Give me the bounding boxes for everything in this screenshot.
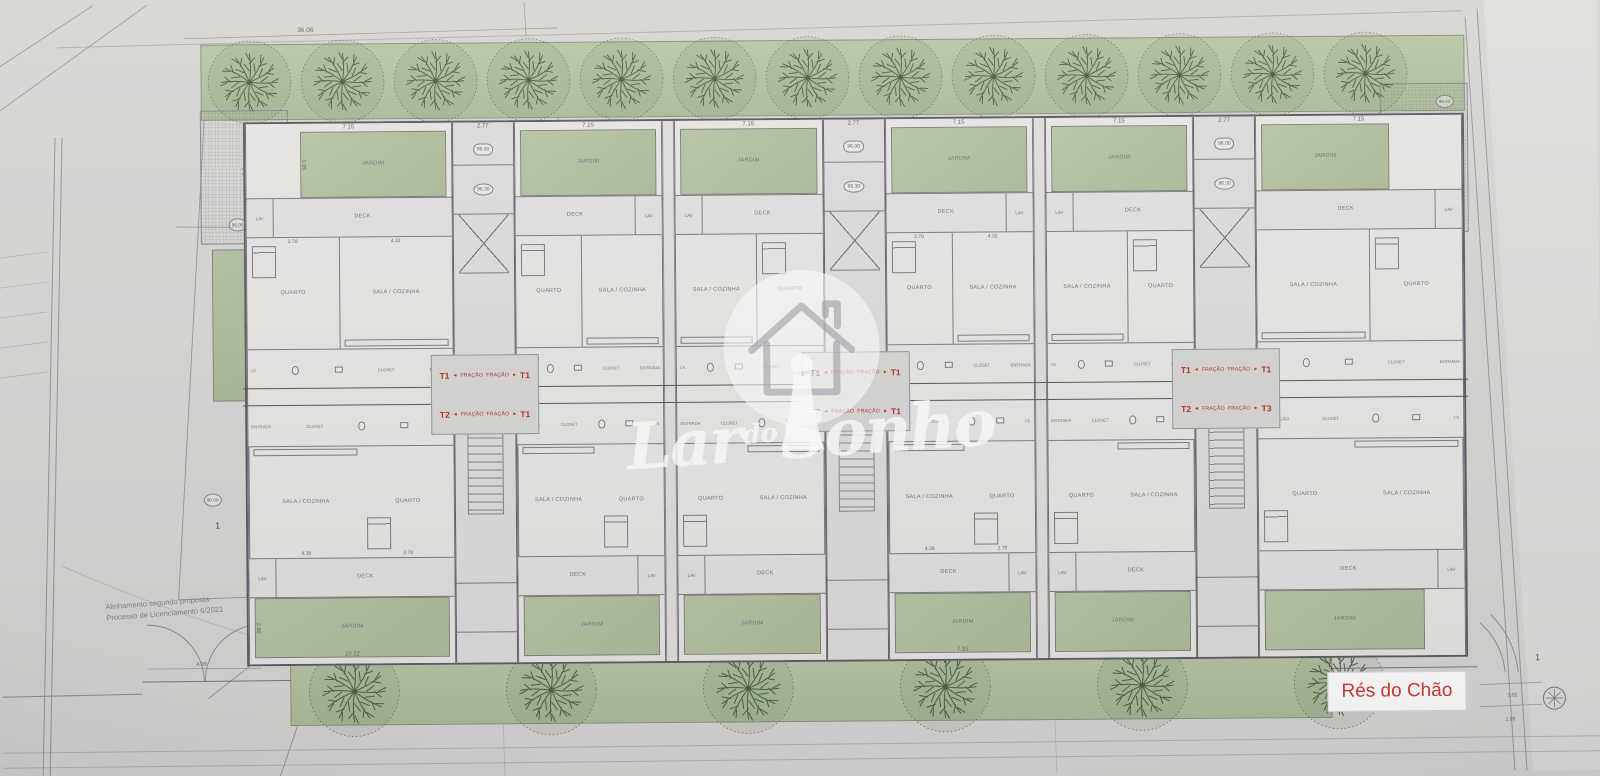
room-label-closet: CLOSET xyxy=(973,362,990,367)
tree-icon xyxy=(1319,27,1412,120)
plan-sheet: 36.06 7.63 4.99 1. xyxy=(0,0,1600,776)
unit-type-label: T2 xyxy=(810,406,820,416)
room-quarto: QUARTO xyxy=(1048,441,1114,553)
sink-icon xyxy=(786,419,794,425)
toilet-icon xyxy=(292,365,299,374)
room-lav: LAV xyxy=(1434,190,1461,228)
room-jardim: 3.95 JARDIM xyxy=(1051,125,1188,192)
room-label-jardim: JARDIM xyxy=(951,619,973,626)
tree-icon xyxy=(482,34,575,127)
fracao-text: FRAÇÃO xyxy=(1202,405,1225,411)
room-label-quarto: QUARTO xyxy=(536,288,561,295)
room-quarto: QUARTO xyxy=(1128,231,1194,343)
room-sala-cozinha: SALA / COZINHA xyxy=(1114,440,1196,552)
room-label-is: I.S. xyxy=(1051,361,1057,366)
room-label-jardim: JARDIM xyxy=(948,156,970,163)
room-jardim: 2.86 JARDIM xyxy=(523,595,660,656)
room-label-quarto: QUARTO xyxy=(281,290,306,297)
bed-furniture xyxy=(604,515,628,547)
room-sala-cozinha: SALA / COZINHA xyxy=(517,445,599,557)
rooms-upper: QUARTO SALA / COZINHA I.S. CLOSET ENTRAD… xyxy=(1257,229,1463,383)
dimension-label: 2.77 xyxy=(453,123,513,129)
dimension-label: 10.22 xyxy=(256,651,449,659)
hallway: ENTRADA CLOSET I.S. xyxy=(248,405,453,448)
room-label-sala: SALA / COZINHA xyxy=(372,289,419,297)
room-jardim: 3.95 JARDIM xyxy=(680,128,817,195)
sink-icon xyxy=(734,363,742,369)
lot-number: 1 xyxy=(215,521,220,531)
room-lav: LAV xyxy=(638,556,665,594)
arrow-right-icon: ► xyxy=(1253,366,1258,372)
room-row: 2.70 QUARTO 4.32 SALA / COZINHA xyxy=(247,237,453,350)
apartment-unit: 7.15 3.95 JARDIM LAV DECK QUARTO SALA / … xyxy=(1255,115,1466,657)
room-jardim: 2.86 JARDIM xyxy=(1054,591,1191,652)
kitchen-counter xyxy=(1051,333,1123,341)
bed-furniture xyxy=(683,515,707,547)
room-deck: LAV DECK xyxy=(676,194,823,235)
staircase xyxy=(467,428,504,514)
room-deck: LAV DECK xyxy=(1046,191,1193,232)
room-row: SALA / COZINHA QUARTO xyxy=(517,444,664,556)
sink-icon xyxy=(1157,416,1165,422)
tree-icon xyxy=(203,36,296,129)
bed-furniture xyxy=(1375,237,1399,269)
toilet-icon xyxy=(969,416,976,425)
bed-furniture xyxy=(367,517,391,549)
room-deck: LAV DECK xyxy=(515,195,662,236)
room-sala-cozinha: 4.32 SALA / COZINHA xyxy=(339,237,453,349)
unit-type-label: T1 xyxy=(1261,364,1271,374)
tree-icon xyxy=(1040,29,1133,122)
room-deck: LAV DECK xyxy=(1049,551,1196,592)
fracao-text: FRAÇÃO xyxy=(857,369,880,375)
bed-furniture xyxy=(1264,510,1288,542)
toilet-icon xyxy=(707,362,714,371)
room-label-jardim: JARDIM xyxy=(362,161,384,168)
room-sala-cozinha: SALA / COZINHA xyxy=(1257,230,1371,342)
room-sala-cozinha: SALA / COZINHA xyxy=(1350,438,1464,550)
fracao-text: FRAÇÃO xyxy=(831,369,854,375)
core-lobby: 96.30 xyxy=(1194,159,1254,208)
hallway: I.S. CLOSET ENTRADA xyxy=(1258,340,1463,383)
room-label-closet: CLOSET xyxy=(931,418,948,423)
unit-type-label: T2 xyxy=(1181,403,1191,413)
room-sala-cozinha: SALA / COZINHA xyxy=(676,234,758,346)
room-label-quarto: QUARTO xyxy=(777,286,802,293)
elevator-shaft xyxy=(829,211,879,270)
room-label-jardim: JARDIM xyxy=(741,621,763,628)
room-label-closet: CLOSET xyxy=(763,364,780,369)
sink-icon xyxy=(945,362,953,368)
arrow-right-icon: ► xyxy=(512,372,517,378)
bed-furniture xyxy=(252,246,276,278)
elevator-shaft xyxy=(458,214,508,273)
room-label-entrada: ENTRADA xyxy=(1051,417,1071,422)
kitchen-counter xyxy=(1262,332,1366,340)
kitchen-counter xyxy=(957,334,1029,342)
staircase xyxy=(838,425,875,511)
toilet-icon xyxy=(547,363,554,372)
room-label-sala: SALA / COZINHA xyxy=(1383,490,1430,498)
room-row: QUARTO SALA / COZINHA xyxy=(676,234,823,346)
room-label-quarto: QUARTO xyxy=(698,496,723,503)
core-vestibule: 96.00 xyxy=(824,131,884,162)
tree-icon xyxy=(389,34,482,127)
unit-type-label: T1 xyxy=(520,409,530,419)
elevator-shaft xyxy=(1200,208,1250,267)
room-quarto: QUARTO xyxy=(598,444,664,556)
corridor-spine-gap xyxy=(1258,381,1463,399)
fracao-labels: T1 ◄ FRAÇÃO FRAÇÃO ► T1 T2 ◄ FRAÇÃO FRAÇ… xyxy=(1172,348,1281,429)
elevation-cote: 96.00 xyxy=(1214,138,1235,150)
room-label-deck: DECK xyxy=(1076,567,1195,575)
corridor-spine-gap xyxy=(248,389,453,407)
fracao-text: FRAÇÃO xyxy=(460,372,483,378)
elevation-cote: 96.00 xyxy=(843,140,864,152)
toilet-icon xyxy=(1077,359,1084,368)
dimension-label: 4.38 xyxy=(250,550,362,557)
room-label-closet: CLOSET xyxy=(1388,359,1405,364)
fracao-row-lower: T2 ◄ FRAÇÃO FRAÇÃO ► T3 xyxy=(1173,403,1279,414)
bed-furniture xyxy=(762,242,786,274)
room-label-entrada: ENTRADA xyxy=(251,424,271,429)
room-label-sala: SALA / COZINHA xyxy=(760,495,807,503)
room-quarto: 2.70 QUARTO xyxy=(886,233,952,345)
stair-core: 2.77 96.00 96.30 T1 ◄ FRAÇÃO FRAÇÃO ► T1… xyxy=(1193,116,1259,656)
toilet-icon xyxy=(917,361,924,370)
dimension-label: 2.77 xyxy=(823,120,883,126)
sink-icon xyxy=(1413,414,1421,420)
room-jardim: 2.86 JARDIM xyxy=(684,594,821,655)
room-jardim: 3.95 JARDIM xyxy=(520,129,657,196)
room-label-sala: SALA / COZINHA xyxy=(1130,492,1177,500)
room-row: QUARTO SALA / COZINHA xyxy=(516,235,663,347)
room-jardim: 3.95 JARDIM xyxy=(1261,123,1389,190)
apartment-unit: 7.15 3.95 JARDIM LAV DECK 2.70 QUARTO 4.… xyxy=(245,123,456,665)
elevation-cote: 96.00 xyxy=(473,143,494,155)
room-label-closet: CLOSET xyxy=(1322,415,1339,420)
room-sala-cozinha: SALA / COZINHA xyxy=(743,443,825,555)
room-label-deck: DECK xyxy=(706,570,825,578)
room-sala-cozinha: SALA / COZINHA xyxy=(1047,231,1129,343)
room-row: SALA / COZINHA QUARTO xyxy=(1259,438,1465,551)
room-jardim: 2.86 JARDIM 10.22 xyxy=(255,597,450,659)
sink-icon xyxy=(996,417,1004,423)
room-label-sala: SALA / COZINHA xyxy=(1063,283,1110,291)
room-lav: LAV xyxy=(1049,553,1076,591)
unit-type-label: T1 xyxy=(1181,364,1191,374)
fracao-row-upper: T1 ◄ FRAÇÃO FRAÇÃO ► T1 xyxy=(432,370,538,381)
fracao-text: FRAÇÃO xyxy=(1202,366,1225,372)
bed-furniture xyxy=(521,244,545,276)
floor-name: Rés do Chão xyxy=(1341,680,1452,703)
room-label-deck: DECK xyxy=(889,569,1008,577)
room-deck: LAV DECK xyxy=(889,552,1036,593)
room-quarto: 2.70 QUARTO xyxy=(969,441,1035,553)
room-row: SALA / COZINHA QUARTO xyxy=(678,443,825,555)
hallway: I.S. CLOSET ENTRADA xyxy=(248,348,453,391)
dimension-label: 7.15 xyxy=(885,119,1031,126)
fracao-row-lower: T2 ◄ FRAÇÃO FRAÇÃO ► T1 xyxy=(432,409,538,420)
fracao-text: FRAÇÃO xyxy=(831,408,854,414)
tree-icon xyxy=(668,32,761,125)
sink-icon xyxy=(1345,359,1353,365)
dimension-label: 4.32 xyxy=(340,238,452,245)
bed-furniture xyxy=(1133,239,1157,271)
dimension-label: 2.86 xyxy=(255,623,261,634)
room-row: SALA / COZINHA QUARTO xyxy=(1048,440,1195,552)
lot-number: 1 xyxy=(1535,652,1540,662)
rooms-lower: CIRCULAÇÃO CLOSET I.S. SALA / COZINHA QU… xyxy=(1258,397,1464,551)
room-label-closet: CLOSET xyxy=(721,420,738,425)
arrow-left-icon: ◄ xyxy=(453,411,458,417)
staircase xyxy=(1208,423,1245,509)
elevation-cote: 96.40 xyxy=(1436,95,1454,108)
arrow-right-icon: ► xyxy=(1254,405,1259,411)
fracao-labels: T1 ◄ FRAÇÃO FRAÇÃO ► T1 T2 ◄ FRAÇÃO FRAÇ… xyxy=(801,351,910,432)
toilet-icon xyxy=(598,419,605,428)
room-label-sala: SALA / COZINHA xyxy=(693,286,740,294)
sink-icon xyxy=(401,422,409,428)
room-lav: LAV xyxy=(1005,193,1032,231)
room-deck: LAV DECK xyxy=(886,192,1033,233)
room-label-closet: CLOSET xyxy=(1134,361,1151,366)
room-quarto: QUARTO xyxy=(678,443,744,555)
arrow-right-icon: ► xyxy=(512,411,517,417)
rooms-lower: ENTRADA CLOSET I.S. 4.38 SALA / COZINHA … xyxy=(248,405,454,559)
dimension-label: 7.15 xyxy=(675,121,821,128)
room-row: QUARTO SALA / COZINHA xyxy=(1047,231,1194,343)
fracao-row-lower: T2 ◄ FRAÇÃO FRAÇÃO ► T1 xyxy=(803,406,909,417)
room-label-sala: SALA / COZINHA xyxy=(535,497,582,505)
room-label-deck: DECK xyxy=(518,572,637,580)
room-label-is: I.S. xyxy=(680,364,686,369)
elevation-cote: 96.30 xyxy=(1214,178,1235,190)
tree-icon xyxy=(947,30,1040,123)
room-sala-cozinha: 4.32 SALA / COZINHA xyxy=(952,232,1034,344)
room-quarto: QUARTO xyxy=(516,236,582,348)
dimension-label: 7.15 xyxy=(515,122,661,129)
room-row: QUARTO SALA / COZINHA xyxy=(1257,229,1463,342)
room-label-is: I.S. xyxy=(1454,414,1460,419)
room-label-sala: SALA / COZINHA xyxy=(1290,282,1337,290)
paper-margin xyxy=(1483,0,1600,771)
room-lav: LAV xyxy=(635,196,662,234)
arrow-left-icon: ◄ xyxy=(1194,405,1199,411)
toilet-icon xyxy=(1129,415,1136,424)
dimension-label: 4.99 xyxy=(196,662,207,668)
room-label-deck: DECK xyxy=(703,210,822,218)
room-label-deck: DECK xyxy=(274,213,452,222)
room-jardim: 2.86 JARDIM xyxy=(1265,589,1425,650)
dimension-label: 4.38 xyxy=(890,546,970,553)
room-row: 4.38 SALA / COZINHA 2.70 QUARTO xyxy=(888,441,1035,553)
dimension-label: 7.15 xyxy=(896,646,1030,653)
dimension-label: 7.15 xyxy=(1046,118,1192,125)
room-quarto: QUARTO xyxy=(1370,229,1463,341)
fracao-text: FRAÇÃO xyxy=(1228,366,1251,372)
fracao-labels: T1 ◄ FRAÇÃO FRAÇÃO ► T1 T2 ◄ FRAÇÃO FRAÇ… xyxy=(431,354,540,435)
unit-type-label: T3 xyxy=(1262,403,1272,413)
kitchen-counter xyxy=(1354,440,1458,448)
floorplan-photo: 36.06 7.63 4.99 1. xyxy=(0,0,1600,776)
elevation-cote: 96.30 xyxy=(844,180,865,192)
kitchen-counter xyxy=(893,444,965,452)
room-deck: LAV DECK xyxy=(249,557,454,599)
room-deck: LAV DECK xyxy=(678,554,825,595)
room-label-deck: DECK xyxy=(886,209,1005,217)
room-sala-cozinha: SALA / COZINHA xyxy=(581,235,663,347)
room-lav: LAV xyxy=(247,199,274,237)
room-label-is: I.S. xyxy=(1025,418,1031,423)
fracao-text: FRAÇÃO xyxy=(1228,405,1251,411)
room-label-jardim: JARDIM xyxy=(1334,616,1356,623)
core-lobby: 96.30 xyxy=(453,165,513,214)
room-label-quarto: QUARTO xyxy=(1148,283,1173,290)
rooms-upper: 2.70 QUARTO 4.32 SALA / COZINHA I.S. CLO… xyxy=(247,237,453,391)
room-label-jardim: JARDIM xyxy=(581,622,603,629)
dimension-label: 2.70 xyxy=(247,239,339,246)
room-jardim: 3.95 JARDIM xyxy=(300,131,446,198)
room-label-deck: DECK xyxy=(515,212,634,220)
arrow-left-icon: ◄ xyxy=(1194,366,1199,372)
fracao-text: FRAÇÃO xyxy=(857,408,880,414)
room-quarto: QUARTO xyxy=(1259,439,1352,551)
arrow-left-icon: ◄ xyxy=(823,369,828,375)
room-label-deck: DECK xyxy=(1260,565,1438,574)
arrow-right-icon: ► xyxy=(883,369,888,375)
arrow-left-icon: ◄ xyxy=(452,372,457,378)
bed-furniture xyxy=(891,241,915,273)
core-vestibule xyxy=(827,628,887,659)
kitchen-counter xyxy=(522,447,594,455)
unit-type-label: T1 xyxy=(891,367,901,377)
kitchen-counter xyxy=(681,336,753,344)
room-jardim: 2.86 JARDIM 7.15 xyxy=(894,592,1031,653)
fracao-row-upper: T1 ◄ FRAÇÃO FRAÇÃO ► T1 xyxy=(1173,364,1279,375)
room-label-jardim: JARDIM xyxy=(1112,618,1134,625)
unit-type-label: T1 xyxy=(891,406,901,416)
room-label-quarto: QUARTO xyxy=(1292,491,1317,498)
room-label-entrada: ENTRADA xyxy=(680,420,700,425)
room-label-sala: SALA / COZINHA xyxy=(906,494,953,502)
dimension-label: 2.70 xyxy=(970,545,1035,552)
room-label-is: I.S. xyxy=(654,421,660,426)
room-label-closet: CLOSET xyxy=(603,365,620,370)
room-row: 4.38 SALA / COZINHA 2.70 QUARTO xyxy=(248,446,454,559)
floor-name-badge: Rés do Chão xyxy=(1327,671,1466,712)
unit-type-label: T1 xyxy=(810,367,820,377)
room-label-quarto: QUARTO xyxy=(1069,493,1094,500)
room-label-quarto: QUARTO xyxy=(989,493,1014,500)
sink-icon xyxy=(334,367,342,373)
room-label-deck: DECK xyxy=(1257,205,1435,214)
room-quarto: QUARTO xyxy=(757,234,823,346)
tree-icon xyxy=(1226,28,1319,121)
room-label-jardim: JARDIM xyxy=(737,158,759,165)
core-vestibule xyxy=(457,631,517,662)
core-vestibule: 96.00 xyxy=(453,134,513,165)
manhole-icon xyxy=(1543,687,1565,709)
room-row: 2.70 QUARTO 4.32 SALA / COZINHA xyxy=(886,232,1033,344)
core-vestibule: 96.00 xyxy=(1194,128,1254,159)
elevation-cote: 96.30 xyxy=(473,183,494,195)
dimension-label: 1.00 xyxy=(1506,716,1516,722)
room-label-quarto: QUARTO xyxy=(1404,281,1429,288)
fracao-text: FRAÇÃO xyxy=(487,411,510,417)
fracao-row-upper: T1 ◄ FRAÇÃO FRAÇÃO ► T1 xyxy=(802,367,908,378)
room-label-closet: CLOSET xyxy=(1092,417,1109,422)
tree-icon xyxy=(1133,29,1226,122)
stair-core: 2.77 96.00 96.30 T1 ◄ FRAÇÃO FRAÇÃO ► T1… xyxy=(452,122,518,662)
room-deck: LAV DECK xyxy=(518,555,665,596)
tree-icon xyxy=(854,31,947,124)
room-lav: LAV xyxy=(1437,550,1464,588)
room-deck: LAV DECK xyxy=(246,197,451,239)
unit-type-label: T1 xyxy=(440,370,450,380)
dimension-label: 1.02 xyxy=(1507,692,1517,698)
room-lav: LAV xyxy=(249,559,276,597)
kitchen-counter xyxy=(587,337,659,345)
core-lobby xyxy=(456,582,516,631)
toilet-icon xyxy=(1372,413,1379,422)
unit-type-label: T1 xyxy=(520,370,530,380)
room-lav: LAV xyxy=(1046,193,1073,231)
room-quarto: 2.70 QUARTO xyxy=(247,238,340,350)
room-label-sala: SALA / COZINHA xyxy=(282,499,329,507)
core-vestibule xyxy=(1198,625,1258,656)
core-lobby: 96.30 xyxy=(824,162,884,211)
core-lobby xyxy=(827,579,887,628)
fracao-text: FRAÇÃO xyxy=(486,372,509,378)
kitchen-counter xyxy=(344,339,448,347)
dimension-label: 3.95 xyxy=(300,160,306,171)
room-quarto: 2.70 QUARTO xyxy=(362,446,455,558)
room-label-jardim: JARDIM xyxy=(1314,153,1336,160)
room-lav: LAV xyxy=(1008,553,1035,591)
unit-type-label: T2 xyxy=(440,409,450,419)
room-label-closet: CLOSET xyxy=(378,367,395,372)
room-label-quarto: QUARTO xyxy=(907,285,932,292)
room-label-entrada: ENTRADA xyxy=(1440,358,1460,363)
room-label-jardim: JARDIM xyxy=(341,624,363,631)
room-deck: LAV DECK xyxy=(1259,549,1464,591)
room-label-quarto: QUARTO xyxy=(395,498,420,505)
stair-core: 2.77 96.00 96.30 T1 ◄ FRAÇÃO FRAÇÃO ► T1… xyxy=(822,119,888,659)
tree-icon xyxy=(761,32,854,125)
tree-icon xyxy=(575,33,668,126)
dimension-label: 36.06 xyxy=(297,27,314,34)
sink-icon xyxy=(1105,361,1113,367)
elevation-cote: 96.00 xyxy=(204,494,222,507)
room-lav: LAV xyxy=(679,556,706,594)
room-label-deck: DECK xyxy=(1073,207,1192,215)
dimension-label: 2.77 xyxy=(1194,117,1254,123)
dimension-label: 4.32 xyxy=(953,233,1033,240)
dimension-label: 2.70 xyxy=(886,234,951,241)
core-lobby xyxy=(1198,576,1258,625)
room-label-jardim: JARDIM xyxy=(1108,155,1130,162)
room-jardim: 3.95 JARDIM xyxy=(890,126,1027,193)
room-sala-cozinha: 4.38 SALA / COZINHA xyxy=(888,442,970,554)
building-plan: 7.15 3.95 JARDIM LAV DECK 2.70 QUARTO 4.… xyxy=(243,113,1468,667)
room-sala-cozinha: 4.38 SALA / COZINHA xyxy=(248,446,362,558)
room-label-closet: CLOSET xyxy=(561,421,578,426)
room-label-quarto: QUARTO xyxy=(619,496,644,503)
sink-icon xyxy=(574,365,582,371)
room-label-sala: SALA / COZINHA xyxy=(969,284,1016,292)
room-deck: LAV DECK xyxy=(1257,189,1462,231)
